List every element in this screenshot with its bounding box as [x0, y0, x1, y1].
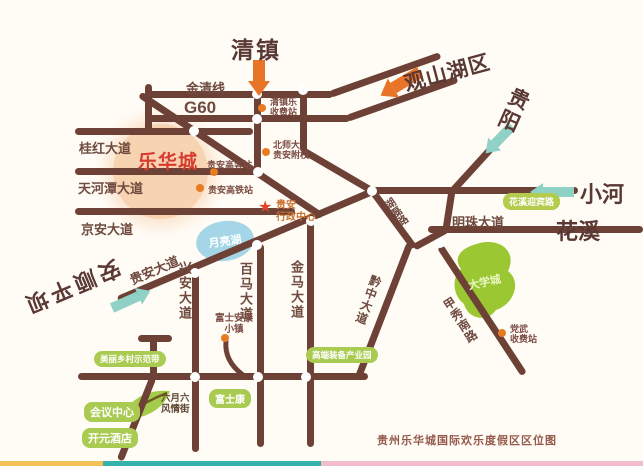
junction-dot [252, 240, 262, 250]
qingzhenle-toll-label: 清镇乐 收费站 [270, 97, 297, 118]
road-baima [257, 244, 264, 447]
badge-fushikang: 富士康 [209, 389, 251, 408]
road-label-jinqingxian: 金清线 [186, 78, 225, 97]
dest-anshun-pingba: 安顺平坝 [9, 249, 136, 327]
fushiankang-town-label: 富士安康 小镇 [211, 314, 257, 336]
bottom-strip-teal [103, 461, 321, 466]
junction-dot [301, 372, 311, 382]
badge-convention-center: 会议中心 [84, 402, 140, 422]
badge-kaiyuan-hotel: 开元酒店 [82, 428, 138, 448]
gaotiezhan-label: 贵安高铁站 [208, 183, 253, 196]
road-label-g60: G60 [184, 98, 216, 118]
anshun-arrow-icon [112, 291, 150, 308]
badge-gaoduan-park: 高端装备产业园 [306, 347, 378, 363]
admin-center-label: 贵安 行政中心 [276, 200, 316, 223]
map-caption: 贵州乐华城国际欢乐度假区区位图 [377, 432, 557, 448]
road-jinma [307, 220, 314, 447]
junction-dot [253, 372, 263, 382]
university-town-label: 大学城 [467, 271, 503, 294]
road-v-west [145, 84, 152, 132]
junction-dot [298, 85, 308, 95]
junction-dot [190, 372, 200, 382]
qingzhenle-toll-dot [258, 104, 266, 112]
road-label-xingan: 兴安大道 [175, 261, 194, 321]
dest-qingzhen: 清镇 [231, 31, 281, 65]
road-v-east-bend [301, 147, 374, 194]
dest-xiaohe: 小河 [580, 177, 624, 209]
road-label-mingzhu: 明珠大道 [452, 212, 504, 231]
road-guihong [75, 128, 253, 135]
badge-meili-village: 美丽乡村示范带 [94, 351, 166, 367]
dangwu-toll-label: 党武 收费站 [510, 324, 537, 345]
bottom-strip-orange [0, 461, 103, 466]
gaokezhan-label: 贵安高客站 [207, 158, 252, 171]
dest-guiyang: 贵阳 [489, 82, 536, 138]
road-label-guihong: 桂红大道 [79, 138, 131, 157]
admin-center-star-icon: ★ [258, 197, 272, 217]
road-label-jingan: 京安大道 [81, 219, 133, 238]
badge-yingbin-road: 花溪迎宾路 [503, 193, 560, 210]
junction-dot [189, 126, 199, 136]
bottom-strip-pink [321, 461, 643, 466]
dangwu-toll-dot [498, 329, 506, 337]
beishida-school-dot [262, 148, 270, 156]
road-label-tianhetan: 天河潭大道 [78, 178, 143, 197]
liuyueliu-street-label: 六月六 风情街 [161, 394, 190, 416]
junction-dot [367, 186, 377, 196]
junction-dot [253, 167, 263, 177]
junction-dot [435, 238, 445, 248]
lehuacheng-title: 乐华城 [138, 147, 198, 174]
road-label-jinma: 金马大道 [287, 260, 306, 320]
map-canvas: 月亮湖 大学城 [0, 0, 643, 466]
road-south-horizontal [78, 373, 368, 380]
junction-dot [252, 114, 262, 124]
beishida-school-label: 北师大 贵安附校 [273, 140, 309, 161]
dest-guanshanhuqu: 观山湖区 [401, 46, 494, 98]
gaotiezhan-dot [196, 184, 204, 192]
dest-huaxi: 花溪 [556, 214, 600, 246]
